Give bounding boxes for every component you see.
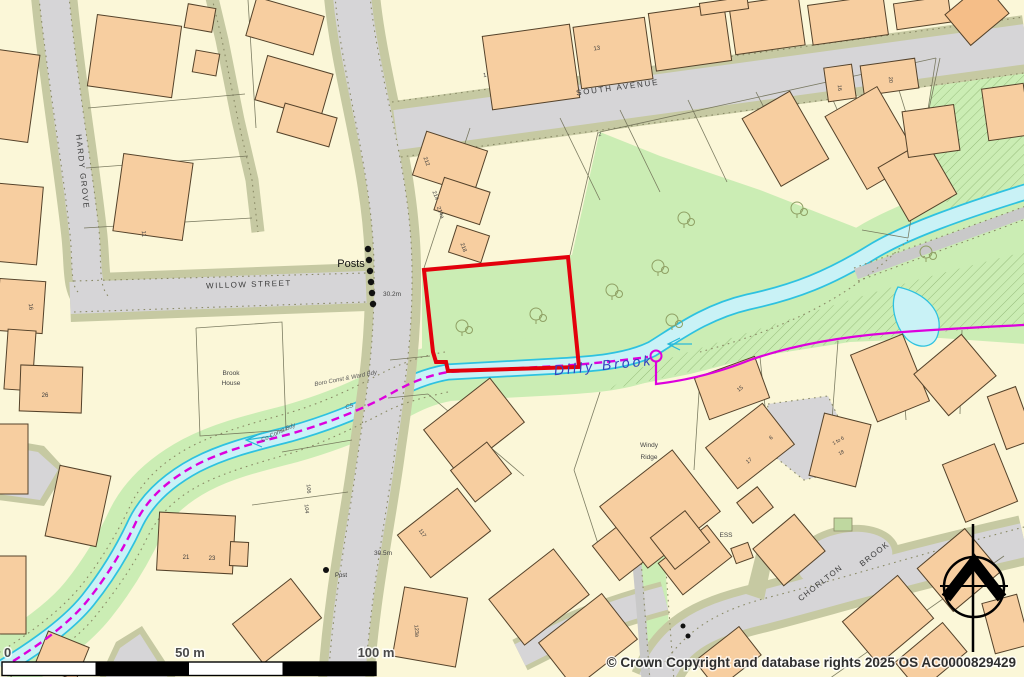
scale-label-50m: 50 m — [175, 645, 205, 660]
road-island — [834, 518, 852, 531]
post-marker — [323, 567, 329, 573]
feature-label-ess: ESS — [719, 532, 733, 539]
house-name-windy: Windy — [640, 442, 659, 449]
house-number: 20 — [887, 77, 894, 84]
os-map-canvas: SOUTH AVENUEWILLOW STREETHARDY GROVECHOR… — [0, 0, 1024, 677]
house-number: 26 — [42, 393, 49, 399]
copyright-text: © Crown Copyright and database rights 20… — [607, 655, 1016, 670]
house-number: 123a — [412, 625, 419, 639]
house-name-brook: Brook — [223, 370, 241, 377]
scale-label-zero: 0 — [4, 645, 11, 660]
house-name-house: House — [222, 380, 241, 387]
feature-label-posts: Posts — [337, 258, 365, 270]
house-number: 106 — [305, 484, 312, 494]
house-number: 104 — [303, 504, 310, 514]
house-number: 23 — [209, 556, 216, 562]
house-name-ridge: Ridge — [641, 454, 658, 461]
feature-label-post: Post — [335, 573, 347, 579]
scale-label-100m: 100 m — [358, 645, 395, 660]
house-number: 21 — [183, 555, 190, 561]
scale-bar-segment — [96, 662, 190, 676]
house-number: 11 — [140, 231, 147, 238]
scale-bar-segment — [283, 662, 377, 676]
spot-height: 30.5m — [374, 550, 392, 557]
house-number: 16 — [27, 303, 34, 311]
spot-height: 30.2m — [383, 291, 401, 298]
map-svg: SOUTH AVENUEWILLOW STREETHARDY GROVECHOR… — [0, 0, 1024, 677]
house-number: 16 — [836, 85, 843, 92]
